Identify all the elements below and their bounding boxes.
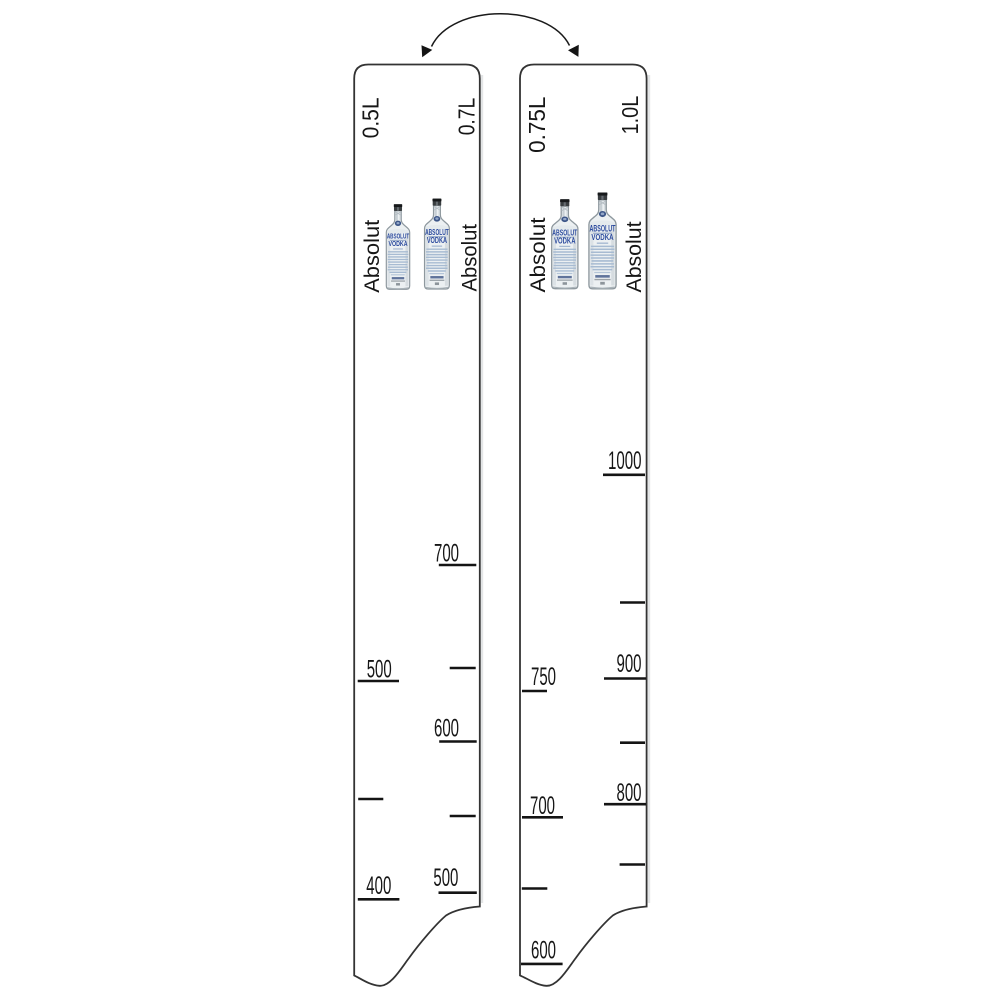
- svg-text:700: 700: [434, 540, 459, 568]
- svg-text:1000: 1000: [608, 447, 642, 475]
- svg-text:1.0L: 1.0L: [617, 96, 643, 135]
- svg-text:Absolut: Absolut: [622, 221, 646, 292]
- svg-text:Absolut: Absolut: [526, 217, 550, 292]
- svg-text:500: 500: [367, 656, 392, 684]
- svg-text:800: 800: [617, 779, 642, 807]
- svg-text:700: 700: [530, 792, 555, 820]
- svg-text:Absolut: Absolut: [360, 220, 384, 293]
- svg-text:500: 500: [433, 864, 458, 892]
- svg-text:Absolut: Absolut: [457, 224, 481, 292]
- svg-text:0.5L: 0.5L: [358, 97, 384, 138]
- svg-text:900: 900: [617, 650, 642, 678]
- svg-text:750: 750: [531, 663, 556, 691]
- svg-text:600: 600: [531, 937, 556, 965]
- svg-text:0.75L: 0.75L: [524, 96, 550, 152]
- svg-text:600: 600: [434, 715, 459, 743]
- svg-text:0.7L: 0.7L: [454, 98, 480, 136]
- svg-text:400: 400: [366, 872, 391, 900]
